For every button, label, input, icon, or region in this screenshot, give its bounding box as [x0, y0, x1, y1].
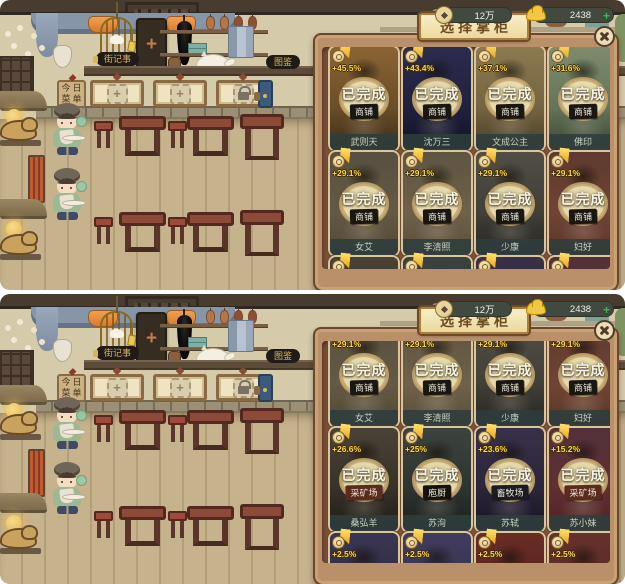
- sleep-bubble: [76, 410, 87, 421]
- coin-badge-icon: [478, 50, 491, 63]
- coin-badge-icon: [551, 50, 564, 63]
- gold-ingot-icon: [526, 302, 546, 315]
- serving-tray: [62, 429, 86, 435]
- copper-amount: 12万: [458, 8, 511, 22]
- dish-slot-1[interactable]: +: [90, 374, 144, 401]
- shopkeeper-name: 少康: [476, 239, 544, 255]
- bonus-percent: +29.1%: [478, 341, 507, 349]
- table: [119, 212, 166, 258]
- bench: [168, 217, 187, 251]
- assigned-venue-badge: 商铺: [569, 104, 597, 120]
- bonus-percent: +29.1%: [332, 168, 361, 178]
- serving-tray: [62, 494, 86, 500]
- copper-coin-icon: [435, 6, 453, 24]
- serving-tray: [62, 200, 86, 206]
- shopkeeper-card[interactable]: +15.2%已完成采矿场苏小妹: [549, 257, 610, 269]
- waiter-character: [47, 462, 87, 515]
- sleep-bubble: [76, 475, 87, 486]
- lock-icon: [238, 386, 249, 394]
- white-bird: [110, 329, 124, 338]
- shopkeeper-card[interactable]: +29.1%已完成商铺少康: [476, 341, 544, 426]
- plus-icon: +: [146, 34, 157, 56]
- bonus-percent: +2.5%: [332, 549, 356, 559]
- assigned-venue-badge: 商铺: [569, 209, 597, 225]
- coin-badge-icon: [332, 50, 345, 63]
- bonus-percent: +31.6%: [551, 63, 580, 73]
- street-journal-button[interactable]: 街记事: [96, 52, 139, 66]
- white-bird: [110, 35, 124, 44]
- assigned-venue-badge: 采矿场: [564, 485, 601, 501]
- signboard[interactable]: [258, 80, 273, 108]
- assigned-venue-badge: 商铺: [423, 104, 451, 120]
- assigned-venue-badge: 商铺: [569, 380, 597, 396]
- bonus-percent: +29.1%: [405, 168, 434, 178]
- coin-badge-icon: [405, 431, 418, 444]
- copper-amount: 12万: [458, 302, 511, 316]
- coin-badge-icon: [551, 260, 564, 269]
- gold-ingot-icon: [526, 8, 546, 21]
- shopkeeper-card[interactable]: +29.1%已完成商铺女艾: [330, 152, 398, 255]
- waiter-character: [47, 103, 87, 156]
- add-currency-button[interactable]: +: [603, 9, 610, 23]
- bonus-percent: +29.1%: [405, 341, 434, 349]
- game-screen-1: + 街记事 图鉴 今日 菜单 +: [0, 0, 625, 290]
- shopkeeper-name: 女艾: [330, 410, 398, 426]
- shopkeeper-panel: +45.5%已完成商铺武则天+43.4%已完成商铺沈万三+37.1%已完成商铺文…: [313, 327, 619, 584]
- shopkeeper-card[interactable]: +23.6%已完成畜牧场苏轼: [476, 257, 544, 269]
- bench: [94, 415, 113, 449]
- assigned-venue-badge: 商铺: [496, 209, 524, 225]
- plus-icon: +: [107, 84, 128, 104]
- ingot-currency-pill: 2438 +: [533, 301, 614, 317]
- bonus-percent: +29.1%: [551, 341, 580, 349]
- shopkeeper-name: 少康: [476, 410, 544, 426]
- bonus-percent: +2.5%: [478, 549, 502, 559]
- bonus-percent: +2.5%: [551, 549, 575, 559]
- coin-badge-icon: [478, 155, 491, 168]
- shopkeeper-card[interactable]: +29.1%已完成商铺女艾: [330, 341, 398, 426]
- assigned-venue-badge: 商铺: [423, 380, 451, 396]
- assigned-venue-badge: 商铺: [350, 209, 378, 225]
- shopkeeper-name: 苏小妹: [549, 515, 610, 531]
- coin-badge-icon: [405, 50, 418, 63]
- shopkeeper-grid[interactable]: +45.5%已完成商铺武则天+43.4%已完成商铺沈万三+37.1%已完成商铺文…: [322, 341, 610, 563]
- shopkeeper-card[interactable]: +43.4%已完成商铺沈万三: [403, 47, 471, 150]
- status-completed: 已完成: [403, 360, 471, 380]
- shopkeeper-name: 文成公主: [476, 134, 544, 150]
- coin-badge-icon: [405, 536, 418, 549]
- card-row: +29.1%已完成商铺女艾+29.1%已完成商铺李清照+29.1%已完成商铺少康…: [330, 341, 610, 426]
- plus-icon: +: [170, 84, 191, 104]
- close-icon[interactable]: [594, 320, 615, 341]
- status-completed: 已完成: [403, 189, 471, 209]
- assigned-venue-badge: 商铺: [496, 104, 524, 120]
- shopkeeper-card[interactable]: +29.1%已完成商铺妇好: [549, 152, 610, 255]
- bonus-percent: +26.6%: [332, 444, 361, 454]
- sleeping-dog: [0, 528, 37, 549]
- hanging-ham: [206, 310, 215, 324]
- shopkeeper-card[interactable]: +31.6%已完成商铺佛印: [549, 47, 610, 150]
- copper-coin-icon: [435, 300, 453, 318]
- table: [187, 212, 234, 258]
- shopkeeper-card[interactable]: +2.5%: [476, 533, 544, 563]
- table: [119, 410, 166, 456]
- coin-badge-icon: [478, 260, 491, 269]
- game-screen-2: + 街记事 图鉴 今日 菜单 +: [0, 294, 625, 584]
- shopkeeper-name: 武则天: [330, 134, 398, 150]
- status-completed: 已完成: [549, 360, 610, 380]
- copper-currency-pill: 12万: [443, 301, 512, 317]
- plus-icon: +: [170, 378, 191, 398]
- status-completed: 已完成: [403, 84, 471, 104]
- status-completed: 已完成: [476, 360, 544, 380]
- street-journal-button[interactable]: 街记事: [96, 346, 139, 360]
- table: [187, 506, 234, 552]
- shopkeeper-card[interactable]: +26.6%已完成采矿场桑弘羊: [330, 257, 398, 269]
- shopkeeper-card[interactable]: +29.1%已完成商铺李清照: [403, 341, 471, 426]
- table: [119, 116, 166, 162]
- shopkeeper-name: 沈万三: [403, 134, 471, 150]
- shopkeeper-name: 苏轼: [476, 515, 544, 531]
- coin-badge-icon: [405, 155, 418, 168]
- coin-badge-icon: [551, 431, 564, 444]
- plus-icon: +: [107, 378, 128, 398]
- sleeping-dog: [0, 414, 37, 435]
- status-completed: 已完成: [330, 360, 398, 380]
- shopkeeper-card[interactable]: +29.1%已完成商铺妇好: [549, 341, 610, 426]
- coin-badge-icon: [405, 260, 418, 269]
- shopkeeper-card[interactable]: +37.1%已完成商铺文成公主: [476, 47, 544, 150]
- shopkeeper-name: 佛印: [549, 134, 610, 150]
- shopkeeper-card[interactable]: +26.6%已完成采矿场桑弘羊: [330, 428, 398, 531]
- tall-table: [240, 210, 284, 262]
- card-row: +2.5%+2.5%+2.5%+2.5%: [330, 533, 610, 563]
- status-completed: 已完成: [476, 465, 544, 485]
- shopkeeper-name: 李清照: [403, 410, 471, 426]
- waiter-character: [47, 397, 87, 450]
- shopkeeper-card[interactable]: +23.6%已完成畜牧场苏轼: [476, 428, 544, 531]
- coin-badge-icon: [332, 155, 345, 168]
- tall-table: [240, 114, 284, 166]
- dish-slot-2[interactable]: +: [153, 374, 207, 401]
- coin-badge-icon: [478, 536, 491, 549]
- table: [119, 506, 166, 552]
- coin-badge-icon: [478, 431, 491, 444]
- sleeping-dog: [0, 234, 37, 255]
- bonus-percent: +45.5%: [332, 63, 361, 73]
- bench: [168, 511, 187, 545]
- assigned-venue-badge: 商铺: [350, 104, 378, 120]
- card-row: +29.1%已完成商铺女艾+29.1%已完成商铺李清照+29.1%已完成商铺少康…: [330, 152, 610, 255]
- bonus-percent: +29.1%: [332, 341, 361, 349]
- bonus-percent: +29.1%: [478, 168, 507, 178]
- bench: [94, 217, 113, 251]
- table: [187, 116, 234, 162]
- book-stack: [228, 26, 254, 58]
- shopkeeper-card[interactable]: +2.5%: [549, 533, 610, 563]
- lock-icon: [238, 92, 249, 100]
- vase: [53, 45, 72, 68]
- status-completed: 已完成: [330, 465, 398, 485]
- shopkeeper-card[interactable]: +2.5%: [403, 533, 471, 563]
- shopkeeper-name: 桑弘羊: [330, 515, 398, 531]
- card-row: +26.6%已完成采矿场桑弘羊+25%已完成庖厨苏洵+23.6%已完成畜牧场苏轼…: [330, 428, 610, 531]
- shopkeeper-name: 苏洵: [403, 515, 471, 531]
- card-row: +45.5%已完成商铺武则天+43.4%已完成商铺沈万三+37.1%已完成商铺文…: [330, 47, 610, 150]
- shopkeeper-name: 妇好: [549, 239, 610, 255]
- eave-roof: [0, 199, 47, 219]
- assigned-venue-badge: 商铺: [496, 380, 524, 396]
- assigned-venue-badge: 商铺: [423, 209, 451, 225]
- bonus-percent: +43.4%: [405, 63, 434, 73]
- shopkeeper-grid[interactable]: +45.5%已完成商铺武则天+43.4%已完成商铺沈万三+37.1%已完成商铺文…: [322, 47, 610, 269]
- eave-roof: [0, 385, 47, 405]
- assigned-venue-badge: 庖厨: [423, 485, 451, 501]
- bonus-percent: +23.6%: [478, 444, 507, 454]
- status-completed: 已完成: [549, 465, 610, 485]
- status-completed: 已完成: [330, 84, 398, 104]
- eave-roof: [0, 493, 47, 513]
- tall-table: [240, 504, 284, 556]
- table: [187, 410, 234, 456]
- shopkeeper-card[interactable]: +25%已完成庖厨苏洵: [403, 428, 471, 531]
- dish-slot-2[interactable]: +: [153, 80, 207, 107]
- bench: [94, 511, 113, 545]
- coin-badge-icon: [332, 536, 345, 549]
- sleep-bubble: [76, 116, 87, 127]
- shopkeeper-card[interactable]: +29.1%已完成商铺少康: [476, 152, 544, 255]
- status-completed: 已完成: [403, 465, 471, 485]
- bonus-percent: +2.5%: [405, 549, 429, 559]
- status-completed: 已完成: [330, 189, 398, 209]
- status-completed: 已完成: [476, 189, 544, 209]
- coin-badge-icon: [332, 260, 345, 269]
- coin-badge-icon: [551, 155, 564, 168]
- shopkeeper-card[interactable]: +2.5%: [330, 533, 398, 563]
- shopkeeper-name: 妇好: [549, 410, 610, 426]
- bonus-percent: +15.2%: [551, 444, 580, 454]
- book-stack: [228, 320, 254, 352]
- serving-tray: [62, 135, 86, 141]
- vase: [53, 339, 72, 362]
- ingot-currency-pill: 2438 +: [533, 7, 614, 23]
- sleep-bubble: [76, 181, 87, 192]
- tall-table: [240, 408, 284, 460]
- bench: [168, 121, 187, 155]
- window-lattice: [0, 56, 34, 94]
- add-currency-button[interactable]: +: [603, 303, 610, 317]
- catalog-button[interactable]: 图鉴: [266, 55, 300, 69]
- bonus-percent: +25%: [405, 444, 427, 454]
- shopkeeper-name: 女艾: [330, 239, 398, 255]
- eave-roof: [0, 91, 47, 111]
- shopkeeper-name: 李清照: [403, 239, 471, 255]
- shopkeeper-card[interactable]: +45.5%已完成商铺武则天: [330, 47, 398, 150]
- screenshot-stack: + 街记事 图鉴 今日 菜单 +: [0, 0, 625, 584]
- close-icon[interactable]: [594, 26, 615, 47]
- assigned-venue-badge: 商铺: [350, 380, 378, 396]
- shopkeeper-card[interactable]: +25%已完成庖厨苏洵: [403, 257, 471, 269]
- dish-slot-1[interactable]: +: [90, 80, 144, 107]
- bench: [94, 121, 113, 155]
- window-lattice: [0, 350, 34, 388]
- status-completed: 已完成: [549, 84, 610, 104]
- shopkeeper-panel: +45.5%已完成商铺武则天+43.4%已完成商铺沈万三+37.1%已完成商铺文…: [313, 33, 619, 290]
- assigned-venue-badge: 畜牧场: [491, 485, 528, 501]
- shopkeeper-card[interactable]: +29.1%已完成商铺李清照: [403, 152, 471, 255]
- bonus-percent: +29.1%: [551, 168, 580, 178]
- status-completed: 已完成: [476, 84, 544, 104]
- shopkeeper-card[interactable]: +15.2%已完成采矿场苏小妹: [549, 428, 610, 531]
- coin-badge-icon: [551, 536, 564, 549]
- coin-badge-icon: [332, 431, 345, 444]
- bonus-percent: +37.1%: [478, 63, 507, 73]
- copper-currency-pill: 12万: [443, 7, 512, 23]
- plus-icon: +: [146, 328, 157, 350]
- status-completed: 已完成: [549, 189, 610, 209]
- hanging-ham: [206, 16, 215, 30]
- card-row: +26.6%已完成采矿场桑弘羊+25%已完成庖厨苏洵+23.6%已完成畜牧场苏轼…: [330, 257, 610, 269]
- assigned-venue-badge: 采矿场: [345, 485, 382, 501]
- signboard[interactable]: [258, 374, 273, 402]
- bench: [168, 415, 187, 449]
- catalog-button[interactable]: 图鉴: [266, 349, 300, 363]
- waiter-character: [47, 168, 87, 221]
- sleeping-dog: [0, 120, 37, 141]
